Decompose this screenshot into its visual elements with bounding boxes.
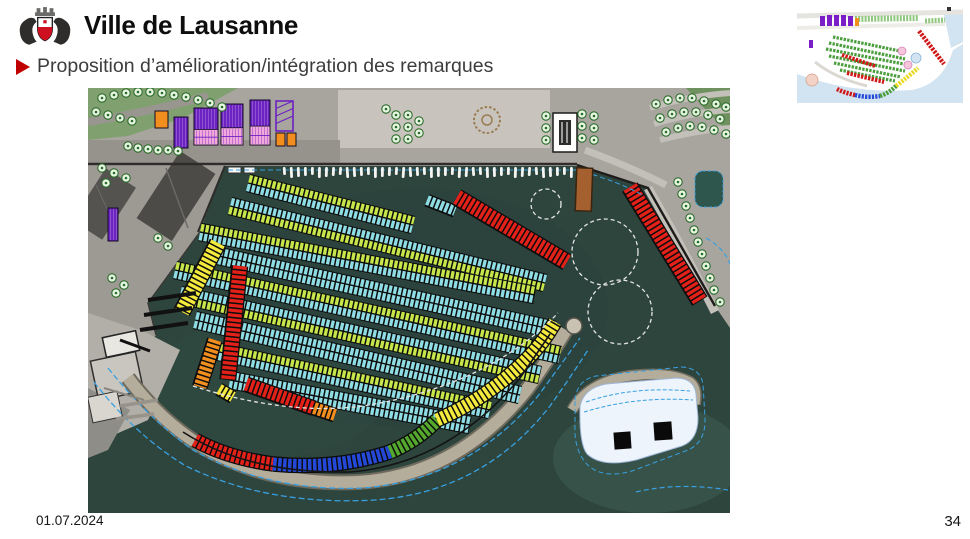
slide: Ville de Lausanne Proposition d’améliora… — [0, 0, 970, 539]
overview-thumbnail-svg — [797, 4, 963, 103]
red-triangle-bullet-icon — [16, 59, 30, 75]
brand-title: Ville de Lausanne — [84, 10, 298, 41]
lausanne-coat-of-arms-logo — [14, 5, 76, 49]
slide-title-row: Proposition d’amélioration/intégration d… — [16, 55, 493, 78]
page-number: 34 — [944, 513, 961, 530]
slide-date: 01.07.2024 — [36, 513, 104, 528]
slide-title: Proposition d’amélioration/intégration d… — [37, 55, 493, 78]
marina-aerial-map-image — [88, 88, 730, 513]
overview-plan-thumbnail — [797, 4, 963, 103]
marina-map-svg — [88, 88, 730, 513]
